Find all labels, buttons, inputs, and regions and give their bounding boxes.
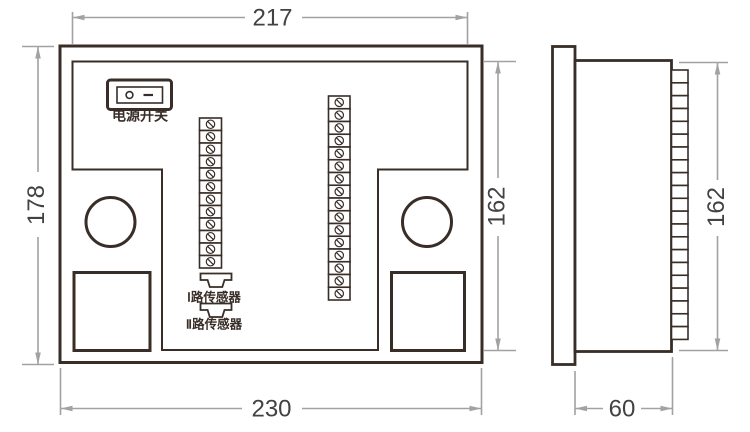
technical-drawing-canvas: 电源开关 Ⅰ路传感器 Ⅱ路传感器 217 — [0, 0, 750, 432]
terminal-cell — [672, 96, 689, 109]
arrowhead-up-icon — [35, 47, 41, 59]
terminal-cell — [672, 198, 689, 211]
arrowhead-right-icon — [661, 406, 673, 412]
dimension-value: 60 — [609, 395, 636, 422]
side-view — [553, 47, 689, 365]
terminal-cell — [672, 173, 689, 186]
terminal-cell — [672, 288, 689, 301]
terminal-cell — [672, 185, 689, 198]
arrowhead-down-icon — [35, 353, 41, 365]
terminal-cell — [672, 211, 689, 224]
arrowhead-up-icon — [715, 63, 721, 75]
terminal-cell — [672, 237, 689, 250]
sensor-connector-1-label: Ⅰ路传感器 — [187, 289, 241, 304]
terminal-cell — [672, 327, 689, 340]
terminal-cell — [672, 275, 689, 288]
arrowhead-up-icon — [495, 62, 501, 74]
dimension-top-width: 217 — [73, 4, 468, 44]
power-switch — [108, 80, 172, 110]
dimension-value: 178 — [23, 185, 50, 225]
side-body — [575, 61, 672, 352]
arrowhead-down-icon — [715, 339, 721, 351]
arrowhead-left-icon — [575, 406, 587, 412]
dimension-bottom-width: 230 — [61, 368, 482, 422]
sensor-connector-2-label: Ⅱ路传感器 — [186, 316, 243, 331]
dimension-value: 217 — [252, 4, 292, 31]
arrowhead-left-icon — [73, 15, 85, 21]
panel-drawing: 电源开关 Ⅰ路传感器 Ⅱ路传感器 217 — [0, 0, 750, 432]
terminal-cell — [672, 314, 689, 327]
terminal-cell — [672, 134, 689, 147]
dimension-value: 162 — [483, 186, 510, 226]
dimension-side-depth: 60 — [575, 357, 673, 422]
side-terminal-ladder — [672, 70, 689, 339]
terminal-cell — [672, 224, 689, 237]
mounting-hole-left — [86, 198, 135, 247]
arrowhead-left-icon — [61, 406, 73, 412]
terminal-cell — [672, 160, 689, 173]
arrowhead-down-icon — [495, 339, 501, 351]
arrowhead-right-icon — [470, 406, 482, 412]
back-view: 电源开关 Ⅰ路传感器 Ⅱ路传感器 — [60, 46, 482, 363]
side-front-bezel — [553, 47, 576, 365]
terminal-cell — [672, 108, 689, 121]
terminal-cell — [672, 121, 689, 134]
terminal-cell — [672, 262, 689, 275]
cutout-right — [392, 273, 465, 351]
mounting-hole-right — [403, 198, 452, 247]
arrowhead-right-icon — [456, 15, 468, 21]
power-switch-rocker — [117, 87, 163, 103]
terminal-cell — [672, 83, 689, 96]
power-switch-label: 电源开关 — [112, 108, 168, 124]
dimension-inner-height-back: 162 — [483, 62, 516, 351]
cutout-left — [74, 273, 150, 351]
terminal-cell — [672, 70, 689, 83]
terminal-cell — [672, 250, 689, 263]
terminal-strip-left — [200, 118, 222, 268]
dimension-value: 162 — [703, 187, 730, 227]
terminal-cell — [672, 147, 689, 160]
terminal-cell — [672, 301, 689, 314]
dimension-value: 230 — [251, 395, 291, 422]
dimension-left-height: 178 — [22, 47, 54, 365]
terminal-strip-right — [329, 96, 351, 300]
